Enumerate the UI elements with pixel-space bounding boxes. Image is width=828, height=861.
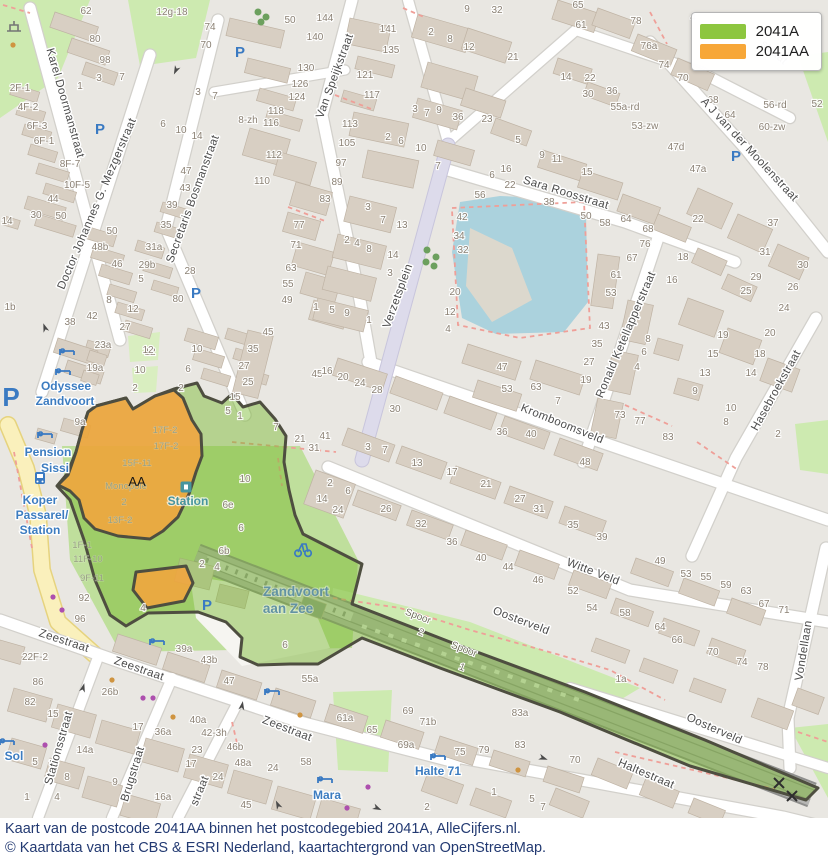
- poi-dot-icon: [10, 42, 15, 47]
- house-number: 80: [89, 34, 101, 45]
- house-number: 105: [339, 138, 356, 149]
- house-number: 6: [641, 347, 647, 358]
- poi-label: Zandvoort: [263, 584, 330, 599]
- house-number: 5: [225, 406, 231, 417]
- house-number: 10: [175, 125, 187, 136]
- house-number: 70: [569, 755, 581, 766]
- house-number: 12: [142, 345, 154, 356]
- house-number: 4: [634, 362, 640, 373]
- house-number: 96: [74, 614, 86, 625]
- shop-dot-icon: [344, 805, 349, 810]
- parking-icon: P: [731, 148, 741, 165]
- house-number: 6b: [218, 546, 230, 557]
- house-number: 24: [354, 378, 366, 389]
- house-number: 52: [567, 586, 579, 597]
- house-number: 67: [758, 599, 770, 610]
- unit-label: 17F-2: [153, 425, 178, 436]
- house-number: 58: [619, 608, 631, 619]
- house-number: 2: [385, 132, 391, 143]
- house-number: 40: [475, 553, 487, 564]
- house-number: 1: [77, 81, 83, 92]
- poi-label: Station: [168, 494, 209, 508]
- house-number: 53: [501, 384, 513, 395]
- house-number: 49: [281, 295, 293, 306]
- house-number: 10: [725, 403, 737, 414]
- house-number: 36a: [155, 727, 172, 738]
- house-number: 12: [127, 304, 139, 315]
- house-number: 82: [24, 697, 36, 708]
- house-number: 12g-18: [156, 7, 188, 18]
- tree-icon: [258, 19, 265, 26]
- shop-dot-icon: [59, 607, 64, 612]
- house-number: 70: [200, 40, 212, 51]
- house-number: 34: [453, 231, 465, 242]
- house-number: 1b: [4, 302, 16, 313]
- train-window: [37, 474, 43, 478]
- house-number: 80: [172, 294, 184, 305]
- house-number: 6e: [222, 500, 234, 511]
- house-number: 49: [654, 556, 666, 567]
- house-number: 5: [515, 135, 521, 146]
- house-number: 31a: [146, 242, 163, 253]
- legend-item: 2041AA: [700, 43, 809, 60]
- house-number: 28: [184, 266, 196, 277]
- house-number: 8-zh: [238, 115, 257, 126]
- legend-swatch-icon: [700, 44, 746, 59]
- house-number: 23: [191, 745, 203, 756]
- postcode-map-page: 6280982F-14F-26F-36F-18F-710F-5443050141…: [0, 0, 828, 861]
- map-canvas[interactable]: 6280982F-14F-26F-36F-18F-710F-5443050141…: [0, 0, 828, 818]
- house-number: 10: [134, 365, 146, 376]
- poi-label: Pension: [25, 445, 72, 459]
- house-number: 21: [507, 52, 519, 63]
- house-number: 64: [654, 622, 666, 633]
- house-number: 8: [723, 417, 729, 428]
- house-number: 26b: [102, 687, 119, 698]
- house-number: 45: [240, 800, 252, 811]
- legend-label: 2041A: [756, 23, 799, 40]
- house-number: 21: [294, 434, 306, 445]
- house-number: 6F-1: [34, 136, 55, 147]
- house-number: 23a: [95, 340, 112, 351]
- house-number: 61: [610, 270, 622, 281]
- house-number: 63: [740, 586, 752, 597]
- poi-label: Passarel/: [16, 508, 69, 522]
- house-number: 36: [446, 537, 458, 548]
- house-number: 44: [502, 562, 514, 573]
- house-number: 53: [680, 569, 692, 580]
- house-number: 4: [445, 324, 451, 335]
- house-number: 6: [238, 523, 244, 534]
- house-number: 144: [317, 13, 334, 24]
- tree-icon: [263, 14, 270, 21]
- house-number: 1: [313, 302, 319, 313]
- house-number: 3: [365, 442, 371, 453]
- house-number: 54: [586, 603, 598, 614]
- tree-icon: [431, 263, 438, 270]
- house-number: 17: [446, 467, 458, 478]
- house-number: 46: [532, 575, 544, 586]
- shop-dot-icon: [42, 742, 47, 747]
- house-number: 11: [552, 154, 563, 165]
- house-number: 28: [371, 385, 383, 396]
- house-number: 71: [778, 605, 790, 616]
- house-number: 121: [357, 70, 374, 81]
- house-number: 55a-rd: [611, 102, 640, 113]
- house-number: 117: [364, 90, 380, 101]
- house-number: 76a: [641, 41, 658, 52]
- house-number: 1: [366, 315, 372, 326]
- house-number: 6: [160, 119, 166, 130]
- house-number: 1a: [615, 674, 627, 685]
- house-number: 30: [582, 89, 594, 100]
- house-number: 47a: [690, 164, 707, 175]
- house-number: 64: [620, 214, 632, 225]
- house-number: 38: [64, 317, 76, 328]
- poi-label: Sol: [5, 749, 24, 763]
- house-number: 79: [478, 745, 490, 756]
- house-number: 2: [199, 559, 205, 570]
- house-number: 24: [212, 772, 224, 783]
- house-number: 69a: [398, 740, 415, 751]
- house-number: 12: [463, 42, 475, 53]
- house-number: 7: [380, 215, 386, 226]
- house-number: 7: [435, 161, 441, 172]
- house-number: 7: [212, 91, 218, 102]
- house-number: 16: [321, 366, 333, 377]
- house-number: 36: [496, 427, 508, 438]
- house-number: 65: [572, 0, 584, 11]
- house-number: 20: [764, 328, 776, 339]
- house-number: 6: [282, 640, 288, 651]
- house-number: 6F-3: [27, 121, 48, 132]
- house-number: 43: [598, 321, 610, 332]
- house-number: 39a: [176, 644, 193, 655]
- poi-label: Odyssee: [41, 379, 91, 393]
- house-number: 15: [47, 709, 59, 720]
- house-number: 83: [662, 432, 674, 443]
- house-number: 21: [480, 479, 492, 490]
- house-number: 31: [533, 504, 545, 515]
- house-number: 47: [496, 362, 508, 373]
- parking-icon: P: [2, 382, 19, 412]
- train-wheel: [37, 481, 39, 483]
- house-number: 55: [700, 572, 712, 583]
- house-number: 39: [166, 200, 178, 211]
- map-caption: Kaart van de postcode 2041AA binnen het …: [0, 818, 828, 861]
- house-number: 52: [811, 99, 823, 110]
- house-number: 20: [449, 287, 461, 298]
- house-number: 22F-2: [22, 652, 49, 663]
- house-number: 65: [366, 725, 378, 736]
- house-number: 25: [740, 286, 752, 297]
- house-number: 2: [178, 383, 184, 394]
- unit-label: 9F-11: [80, 573, 104, 584]
- house-number: 10: [415, 143, 427, 154]
- house-number: 9: [112, 777, 118, 788]
- house-number: 83a: [512, 708, 529, 719]
- parking-icon: P: [202, 597, 212, 614]
- house-number: 6: [489, 170, 495, 181]
- house-number: 15: [229, 392, 241, 403]
- unit-label: 15F-11: [122, 458, 151, 469]
- postcode-aa-label: AA: [128, 474, 146, 489]
- poi-dot-icon: [297, 712, 302, 717]
- house-number: 27: [119, 322, 131, 333]
- house-number: 27: [238, 361, 250, 372]
- house-number: 50: [284, 15, 296, 26]
- house-number: 46: [111, 259, 123, 270]
- house-number: 53-zw: [632, 121, 659, 132]
- house-number: 5: [138, 274, 144, 285]
- house-number: 130: [298, 63, 315, 74]
- house-number: 26: [380, 504, 392, 515]
- shop-dot-icon: [50, 594, 55, 599]
- house-number: 14: [1, 216, 13, 227]
- house-number: 32: [457, 245, 469, 256]
- house-number: 8F-7: [60, 159, 81, 170]
- house-number: 92: [78, 593, 90, 604]
- house-number: 63: [530, 382, 542, 393]
- house-number: 140: [307, 32, 324, 43]
- house-number: 23: [481, 114, 493, 125]
- unit-label: 1F-1: [72, 540, 92, 551]
- train-wheel: [42, 481, 44, 483]
- station-icon-door: [184, 485, 188, 490]
- house-number: 4: [354, 238, 360, 249]
- house-number: 17: [185, 759, 197, 770]
- house-number: 141: [380, 24, 397, 35]
- house-number: 40: [525, 429, 537, 440]
- house-number: 29: [750, 272, 762, 283]
- house-number: 22: [692, 214, 704, 225]
- house-number: 14: [560, 72, 572, 83]
- house-number: 89: [331, 177, 343, 188]
- legend-swatch-icon: [700, 24, 746, 39]
- house-number: 86: [32, 677, 44, 688]
- house-number: 10: [239, 474, 251, 485]
- house-number: 118: [268, 106, 284, 117]
- house-number: 27: [514, 494, 526, 505]
- house-number: 116: [263, 118, 279, 129]
- poi-dot-icon: [515, 767, 520, 772]
- house-number: 13: [411, 458, 423, 469]
- house-number: 2: [344, 235, 350, 246]
- parking-icon: P: [95, 121, 105, 138]
- house-number: 9: [539, 150, 545, 161]
- house-number: 70: [677, 73, 689, 84]
- house-number: 126: [292, 79, 309, 90]
- house-number: 25: [242, 377, 254, 388]
- house-number: 3: [96, 73, 102, 84]
- house-number: 50: [106, 226, 118, 237]
- house-number: 112: [266, 150, 282, 161]
- house-number: 48b: [92, 242, 109, 253]
- house-number: 69: [402, 706, 414, 717]
- house-number: 7: [555, 396, 561, 407]
- house-number: 73: [614, 410, 626, 421]
- house-number: 124: [289, 92, 306, 103]
- house-number: 10: [191, 344, 203, 355]
- shop-dot-icon: [150, 695, 155, 700]
- house-number: 110: [254, 176, 270, 187]
- house-number: 5: [32, 757, 38, 768]
- house-number: 20: [337, 372, 349, 383]
- house-number: 45: [262, 327, 274, 338]
- house-number: 36: [452, 112, 464, 123]
- house-number: 67: [626, 253, 638, 264]
- tree-icon: [423, 259, 430, 266]
- house-number: 6: [398, 136, 404, 147]
- house-number: 9a: [74, 417, 86, 428]
- poi-label: Station: [20, 523, 61, 537]
- house-number: 60-zw: [759, 122, 786, 133]
- house-number: 38: [543, 197, 555, 208]
- parking-icon: P: [235, 44, 245, 61]
- house-number: 3: [365, 202, 371, 213]
- house-number: 74: [658, 60, 670, 71]
- house-number: 8: [447, 34, 453, 45]
- house-number: 19: [717, 330, 729, 341]
- caption-line1: Kaart van de postcode 2041AA binnen het …: [5, 820, 823, 839]
- house-number: 58: [300, 757, 312, 768]
- house-number: 77: [293, 220, 305, 231]
- house-number: 22: [584, 73, 596, 84]
- map-legend: 2041A2041AA: [691, 12, 822, 71]
- house-number: 14a: [77, 745, 94, 756]
- house-number: 7: [273, 422, 279, 433]
- house-number: 2: [424, 802, 430, 813]
- house-number: 14: [316, 494, 328, 505]
- house-number: 2: [428, 27, 434, 38]
- house-number: 24: [778, 303, 790, 314]
- house-number: 4: [54, 792, 60, 803]
- house-number: 7: [424, 108, 430, 119]
- unit-label: 11F-10: [73, 554, 102, 565]
- house-number: 1: [491, 787, 497, 798]
- house-number: 29b: [139, 260, 156, 271]
- house-number: 78: [630, 16, 642, 27]
- legend-item: 2041A: [700, 23, 809, 40]
- house-number: 7: [540, 802, 546, 813]
- house-number: 62: [80, 6, 92, 17]
- poi-dot-icon: [170, 714, 175, 719]
- parking-icon: P: [191, 285, 201, 302]
- house-number: 14: [387, 250, 399, 261]
- house-number: 24: [267, 763, 279, 774]
- house-number: 37: [767, 218, 779, 229]
- unit-label: 2: [121, 497, 126, 508]
- house-number: 9: [436, 105, 442, 116]
- house-number: 2: [327, 478, 333, 489]
- house-number: 18: [754, 349, 766, 360]
- house-number: 59: [720, 580, 732, 591]
- house-number: 35: [247, 344, 259, 355]
- house-number: 135: [383, 45, 400, 56]
- house-number: 24: [332, 505, 344, 516]
- house-number: 30: [797, 260, 809, 271]
- house-number: 3: [387, 268, 393, 279]
- house-number: 42: [86, 311, 98, 322]
- house-number: 8: [64, 772, 70, 783]
- house-number: 39: [596, 532, 608, 543]
- house-number: 9: [464, 4, 470, 15]
- house-number: 75: [454, 747, 466, 758]
- house-number: 22: [504, 180, 516, 191]
- tree-icon: [433, 254, 440, 261]
- house-number: 43b: [201, 655, 218, 666]
- house-number: 48: [579, 457, 591, 468]
- house-number: 56: [474, 190, 486, 201]
- house-number: 4: [214, 562, 220, 573]
- house-number: 5: [329, 305, 335, 316]
- house-number: 4: [140, 603, 146, 614]
- house-number: 83: [514, 740, 526, 751]
- house-number: 47: [223, 676, 235, 687]
- shop-dot-icon: [140, 695, 145, 700]
- house-number: 32: [415, 519, 427, 530]
- house-number: 48a: [235, 758, 252, 769]
- postcode-area-2041AA: [133, 566, 193, 608]
- house-number: 17: [132, 722, 144, 733]
- house-number: 53: [605, 288, 617, 299]
- house-number: 7: [382, 445, 388, 456]
- house-number: 32: [491, 5, 503, 16]
- house-number: 61a: [337, 713, 354, 724]
- house-number: 83: [319, 194, 331, 205]
- house-number: 16a: [155, 792, 172, 803]
- house-number: 26: [787, 282, 799, 293]
- house-number: 61: [575, 20, 587, 31]
- shop-dot-icon: [365, 784, 370, 789]
- house-number: 3: [195, 87, 201, 98]
- house-number: 113: [342, 119, 358, 130]
- house-number: 15: [581, 167, 593, 178]
- house-number: 10F-5: [64, 180, 91, 191]
- house-number: 15: [707, 349, 719, 360]
- house-number: 74: [736, 657, 748, 668]
- house-number: 74: [204, 22, 216, 33]
- house-number: 41: [319, 431, 331, 442]
- house-number: 55a: [302, 674, 319, 685]
- house-number: 35: [591, 339, 603, 350]
- house-number: 8: [645, 334, 651, 345]
- house-number: 44: [47, 194, 59, 205]
- house-number: 27: [583, 357, 595, 368]
- tree-icon: [255, 9, 262, 16]
- house-number: 6: [185, 364, 191, 375]
- house-number: 71: [290, 240, 302, 251]
- house-number: 58: [599, 218, 611, 229]
- house-number: 18: [677, 252, 689, 263]
- house-number: 40a: [190, 715, 207, 726]
- house-number: 47: [180, 166, 192, 177]
- house-number: 76: [639, 239, 651, 250]
- house-number: 31: [308, 443, 320, 454]
- poi-label: Koper: [23, 493, 58, 507]
- caption-line2: © Kaartdata van het CBS & ESRI Nederland…: [5, 839, 823, 858]
- house-number: 2: [775, 429, 781, 440]
- house-number: 12: [444, 307, 456, 318]
- house-number: 46b: [227, 742, 244, 753]
- unit-label: 17F-2: [154, 441, 179, 452]
- house-number: 30: [389, 404, 401, 415]
- house-number: 35: [567, 520, 579, 531]
- house-number: 16: [500, 164, 512, 175]
- house-number: 35: [160, 220, 172, 231]
- park-area: [795, 420, 828, 474]
- poi-dot-icon: [109, 677, 114, 682]
